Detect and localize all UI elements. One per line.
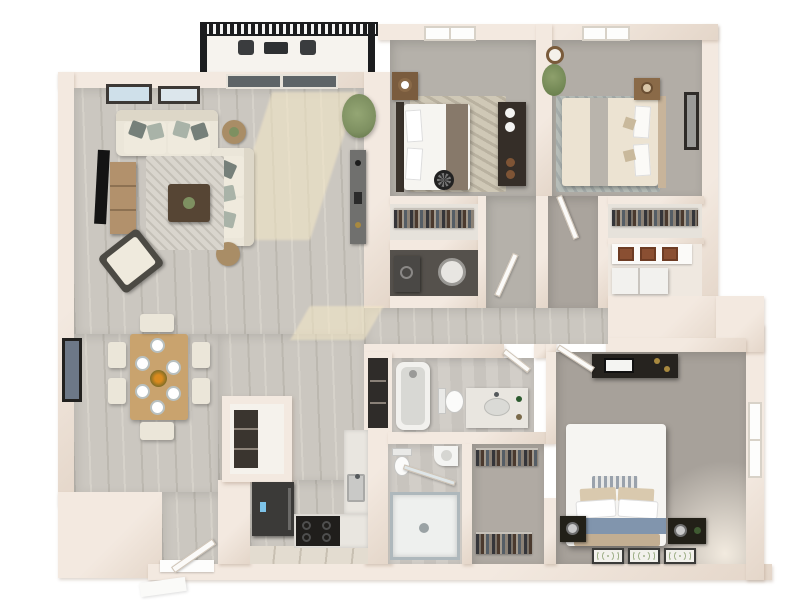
wall-bottom xyxy=(148,564,772,580)
wall-left xyxy=(58,72,74,506)
wall-master-top-b xyxy=(606,338,746,352)
patio-chair xyxy=(300,40,316,55)
pantry xyxy=(222,396,292,482)
window xyxy=(748,402,762,478)
corner-sink xyxy=(434,446,458,466)
accent-rug xyxy=(628,548,660,564)
walk-in-closet-clothes-top xyxy=(476,448,538,466)
walk-in-closet-clothes-bottom xyxy=(476,532,532,554)
wall-art xyxy=(684,92,699,150)
window xyxy=(582,26,630,41)
wall-corridor-left xyxy=(536,196,548,308)
pillow xyxy=(405,147,423,180)
place-setting xyxy=(166,360,181,375)
pillow xyxy=(633,143,651,176)
floor-plan xyxy=(0,0,800,600)
patio-table xyxy=(264,42,288,54)
kitchen-sink xyxy=(347,474,365,502)
washer xyxy=(394,256,420,292)
nightstand xyxy=(392,72,418,100)
bedroom-3 xyxy=(552,40,702,196)
wall-closet2-right xyxy=(478,196,486,308)
round-side-table xyxy=(222,120,246,144)
wall-bath2-closet xyxy=(462,444,472,564)
dining-table xyxy=(130,334,188,420)
bottle xyxy=(694,527,701,534)
bedroom-2 xyxy=(390,40,536,196)
shower xyxy=(390,492,460,560)
basket xyxy=(618,247,634,261)
throw-blanket xyxy=(590,98,608,186)
sliding-glass-door-mullion xyxy=(280,74,283,89)
place-setting xyxy=(150,338,165,353)
potted-plant xyxy=(542,64,566,96)
accent-rug xyxy=(592,548,624,564)
headboard xyxy=(396,102,404,192)
range xyxy=(296,516,340,546)
floor-fan xyxy=(434,170,454,190)
toilet-bowl xyxy=(445,390,464,413)
accent-rug xyxy=(664,548,696,564)
wall-bottom-left-block xyxy=(58,492,162,578)
hallway-floor xyxy=(364,308,608,344)
dining-chair xyxy=(140,314,174,332)
toilet xyxy=(392,448,412,456)
dining-chair xyxy=(108,378,126,404)
wall-closet3-top xyxy=(608,196,704,204)
storage-cabinet xyxy=(612,268,668,294)
basket xyxy=(640,247,656,261)
wall-clock xyxy=(546,46,564,64)
bedroom-2-closet-clothes xyxy=(394,208,474,228)
centerpiece xyxy=(150,370,167,387)
plant-pot xyxy=(229,127,239,137)
balcony-railing-post-left xyxy=(200,22,207,74)
bedroom-2-entry-floor xyxy=(486,196,536,308)
wall-master-left xyxy=(546,352,556,444)
plant-pot xyxy=(183,197,195,209)
nightstand xyxy=(560,516,586,542)
wall-bath1-top-b xyxy=(534,344,546,358)
table-lamp xyxy=(674,524,687,537)
place-setting xyxy=(135,356,150,371)
sofa xyxy=(116,110,218,156)
wall-closet-master xyxy=(544,498,556,564)
place-setting xyxy=(166,386,181,401)
media-console xyxy=(592,354,678,378)
bathtub xyxy=(396,362,430,430)
coffee-table xyxy=(168,184,210,222)
linen-closet xyxy=(366,356,390,430)
table-lamp xyxy=(398,78,412,92)
box xyxy=(506,170,515,179)
dining-chair xyxy=(140,422,174,440)
balcony-railing-post-right xyxy=(368,22,375,74)
bed xyxy=(562,98,658,186)
patio-chair xyxy=(238,40,254,55)
refrigerator xyxy=(252,482,294,536)
dining-chair xyxy=(192,342,210,368)
pillow xyxy=(405,109,423,142)
console-table xyxy=(350,150,366,244)
nightstand xyxy=(668,518,706,544)
bedroom-3-closet-clothes xyxy=(612,208,698,226)
wall-closet2-top xyxy=(390,196,484,204)
vase xyxy=(505,108,515,118)
wall-closet2-laundry xyxy=(390,240,484,250)
bench xyxy=(574,534,660,546)
wall-art xyxy=(158,86,200,104)
potted-plant xyxy=(342,94,376,138)
basket xyxy=(662,247,678,261)
kitchen-tile-floor xyxy=(250,546,368,564)
table-lamp xyxy=(566,522,579,535)
wall-bath1-bath2 xyxy=(388,432,546,444)
dining-chair xyxy=(192,378,210,404)
place-setting xyxy=(150,400,165,415)
wall-corridor-right xyxy=(598,196,608,308)
dining-chair xyxy=(108,342,126,368)
place-setting xyxy=(135,384,150,399)
wall-entry-kitchen xyxy=(218,480,250,564)
nightstand xyxy=(634,78,660,100)
wall-right-upper xyxy=(702,24,718,310)
vanity-sink xyxy=(466,388,528,428)
window xyxy=(424,26,476,41)
table-lamp xyxy=(641,82,653,94)
box xyxy=(506,158,515,167)
dresser xyxy=(498,102,526,186)
tv-stand xyxy=(110,162,136,234)
headboard xyxy=(658,96,666,188)
wall-art xyxy=(62,338,82,402)
tv xyxy=(604,358,634,373)
balcony-railing xyxy=(200,22,378,36)
pillow xyxy=(617,499,658,520)
corridor-floor xyxy=(548,196,598,308)
water-heater xyxy=(438,258,466,286)
wall-laundry-bottom xyxy=(390,296,484,308)
vase xyxy=(505,122,515,132)
exterior-step xyxy=(139,577,187,597)
wall-art xyxy=(106,84,152,104)
basket-shelf xyxy=(612,244,692,264)
